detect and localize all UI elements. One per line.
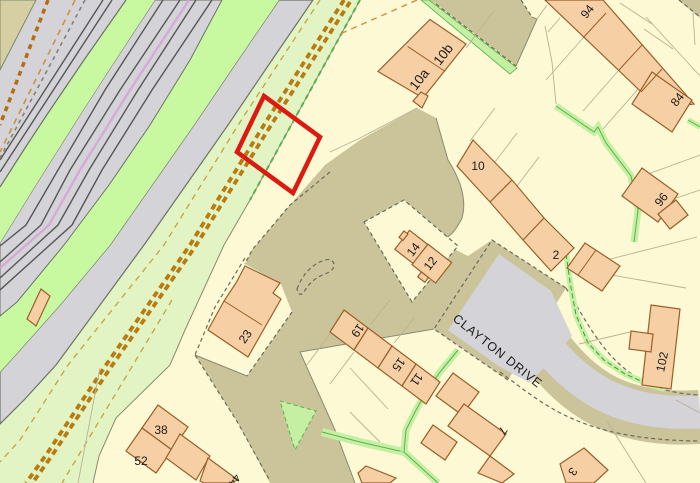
svg-text:52: 52 xyxy=(134,454,148,468)
svg-text:10: 10 xyxy=(471,159,485,173)
svg-text:2: 2 xyxy=(553,248,560,262)
svg-text:38: 38 xyxy=(154,423,168,437)
